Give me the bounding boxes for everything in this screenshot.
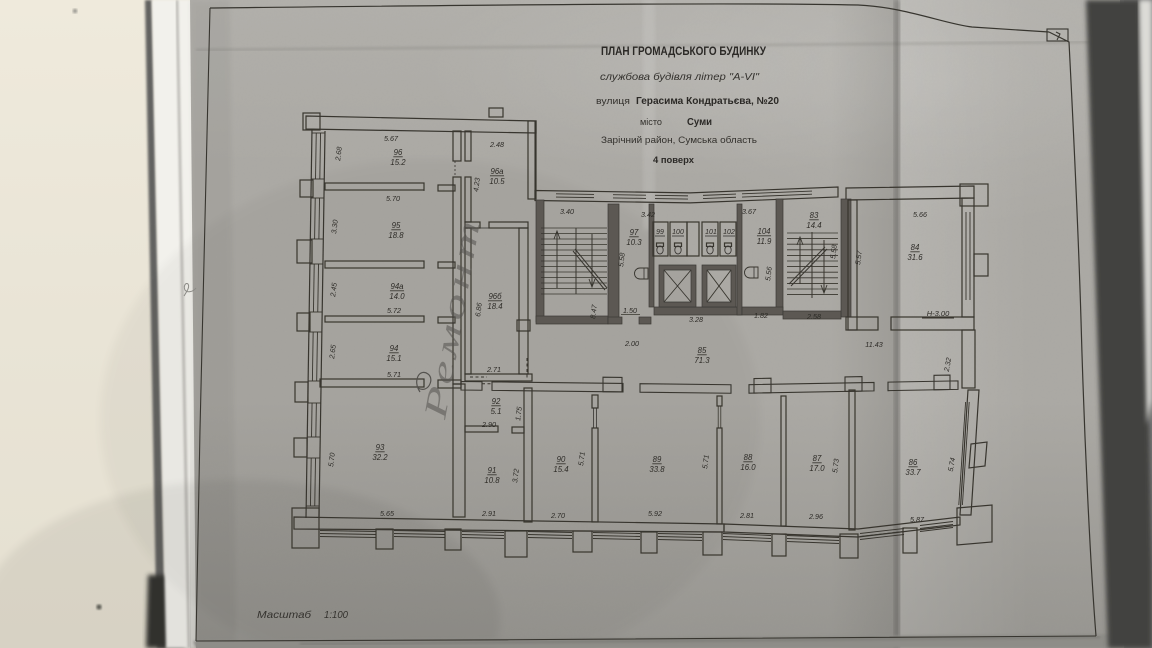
svg-text:96б: 96б: [488, 292, 502, 301]
svg-text:ПЛАН ГРОМАДСЬКОГО БУДИНКУ: ПЛАН ГРОМАДСЬКОГО БУДИНКУ: [601, 46, 767, 58]
svg-text:92: 92: [492, 397, 501, 406]
svg-text:4.23: 4.23: [471, 177, 482, 192]
svg-text:місто: місто: [640, 117, 662, 128]
svg-text:85: 85: [698, 346, 707, 355]
svg-text:2.81: 2.81: [739, 511, 754, 520]
svg-text:2.48: 2.48: [489, 140, 504, 149]
svg-text:11.9: 11.9: [757, 237, 772, 246]
svg-text:15.2: 15.2: [390, 158, 406, 167]
svg-text:6.86: 6.86: [473, 302, 484, 317]
svg-text:3.42: 3.42: [641, 210, 655, 219]
svg-text:5.71: 5.71: [576, 451, 587, 466]
svg-text:3.40: 3.40: [560, 207, 574, 216]
svg-text:2.00: 2.00: [624, 339, 639, 348]
svg-text:5.1: 5.1: [491, 407, 502, 416]
svg-text:2.58: 2.58: [806, 312, 821, 321]
svg-text:96: 96: [394, 148, 403, 157]
svg-text:91: 91: [488, 466, 497, 475]
svg-text:3.30: 3.30: [329, 219, 340, 234]
svg-text:Н-3.00: Н-3.00: [927, 309, 950, 318]
svg-text:5.71: 5.71: [387, 370, 401, 379]
svg-text:5.58: 5.58: [616, 252, 627, 267]
svg-text:8.47: 8.47: [588, 303, 599, 319]
svg-text:Масштаб: Масштаб: [257, 609, 312, 621]
svg-text:93: 93: [376, 443, 385, 452]
svg-text:5.73: 5.73: [830, 458, 841, 473]
svg-text:100: 100: [672, 229, 684, 236]
svg-text:86: 86: [909, 458, 918, 467]
svg-text:99: 99: [656, 229, 664, 236]
svg-text:33.8: 33.8: [649, 465, 665, 474]
svg-text:10.3: 10.3: [626, 238, 642, 247]
svg-text:71.3: 71.3: [694, 356, 710, 365]
svg-text:94а: 94а: [390, 282, 404, 291]
svg-text:14.0: 14.0: [389, 292, 405, 301]
svg-text:Герасима Кондратьєва, №20: Герасима Кондратьєва, №20: [636, 96, 779, 107]
svg-text:89: 89: [653, 455, 662, 464]
svg-text:84: 84: [911, 243, 920, 252]
svg-text:97: 97: [630, 228, 639, 237]
svg-text:11.43: 11.43: [865, 340, 882, 349]
svg-text:2.70: 2.70: [550, 511, 565, 520]
svg-text:3.28: 3.28: [689, 315, 703, 324]
svg-text:90: 90: [557, 455, 566, 464]
svg-text:вулиця: вулиця: [596, 96, 630, 107]
svg-text:88: 88: [744, 453, 753, 462]
svg-text:101: 101: [705, 229, 717, 236]
svg-text:2.91: 2.91: [481, 509, 496, 518]
svg-text:32.2: 32.2: [372, 453, 388, 462]
svg-text:5.70: 5.70: [326, 452, 337, 467]
svg-text:14.4: 14.4: [806, 221, 822, 230]
svg-text:3.67: 3.67: [742, 207, 757, 216]
svg-text:16.0: 16.0: [740, 463, 756, 472]
svg-text:2.96: 2.96: [808, 512, 823, 521]
svg-text:1.82: 1.82: [754, 311, 768, 320]
svg-text:5.72: 5.72: [387, 306, 401, 315]
svg-text:5.65: 5.65: [380, 509, 395, 518]
svg-text:102: 102: [723, 229, 735, 236]
svg-text:1:100: 1:100: [324, 609, 348, 621]
svg-text:5.66: 5.66: [913, 210, 927, 219]
svg-text:2.90: 2.90: [481, 420, 496, 429]
svg-text:3.72: 3.72: [510, 468, 521, 483]
svg-text:18.4: 18.4: [487, 302, 503, 311]
svg-text:2.71: 2.71: [486, 365, 501, 374]
svg-text:5.71: 5.71: [700, 454, 711, 469]
svg-text:31.6: 31.6: [907, 253, 923, 262]
svg-text:15.4: 15.4: [553, 465, 569, 474]
svg-text:83: 83: [810, 211, 819, 220]
svg-text:5.67: 5.67: [384, 134, 399, 143]
svg-text:5.70: 5.70: [386, 194, 400, 203]
svg-text:33.7: 33.7: [905, 468, 921, 477]
svg-text:94: 94: [390, 344, 399, 353]
svg-text:18.8: 18.8: [388, 231, 404, 240]
svg-text:5.92: 5.92: [648, 509, 662, 518]
svg-text:96а: 96а: [490, 167, 504, 176]
svg-text:службова будівля літер "А-VІ": службова будівля літер "А-VІ": [600, 71, 760, 83]
svg-text:95: 95: [392, 221, 401, 230]
svg-text:Суми: Суми: [687, 117, 712, 128]
svg-text:Зарічний район, Сумська област: Зарічний район, Сумська область: [601, 135, 757, 146]
svg-text:2.68: 2.68: [333, 146, 344, 162]
svg-text:5.58: 5.58: [828, 244, 839, 259]
svg-text:104: 104: [757, 227, 771, 236]
svg-text:5.57: 5.57: [853, 249, 864, 265]
svg-text:17.0: 17.0: [809, 464, 825, 473]
svg-text:87: 87: [813, 454, 822, 463]
svg-text:10.8: 10.8: [484, 476, 500, 485]
svg-text:4 поверх: 4 поверх: [653, 155, 695, 166]
svg-text:1.50: 1.50: [623, 306, 637, 315]
svg-text:1.75: 1.75: [513, 405, 524, 421]
svg-text:5.56: 5.56: [763, 266, 774, 281]
svg-text:5.87: 5.87: [910, 515, 925, 524]
svg-text:15.1: 15.1: [386, 354, 401, 363]
svg-text:10.5: 10.5: [489, 177, 505, 186]
